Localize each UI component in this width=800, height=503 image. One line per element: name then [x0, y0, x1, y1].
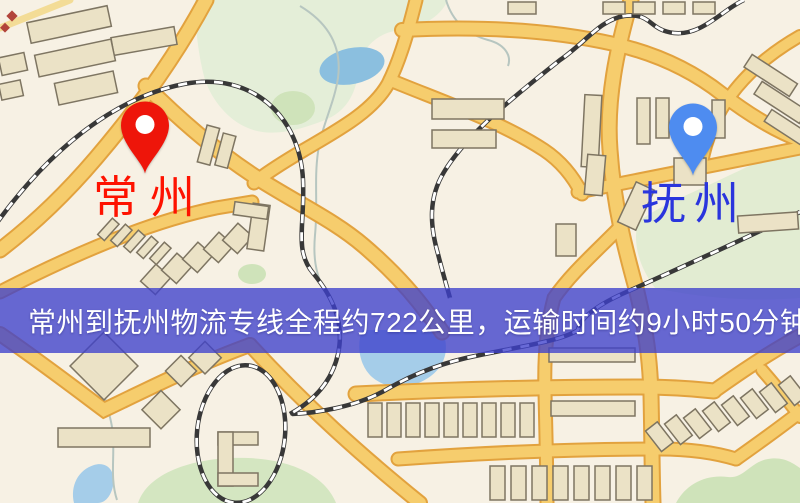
pin-body: [121, 102, 169, 174]
route-info-text: 常州到抚州物流专线全程约722公里，运输时间约9小时50分钟.: [0, 301, 800, 341]
pin-hole: [684, 117, 703, 136]
destination-pin[interactable]: [669, 103, 717, 176]
destination-city-label: 抚州: [641, 182, 747, 227]
pin-body: [669, 104, 717, 176]
origin-city-label: 常州: [93, 176, 207, 221]
pin-hole: [136, 115, 155, 134]
location-pin-icon: [669, 103, 717, 176]
location-pin-icon: [121, 101, 169, 174]
map-container[interactable]: 常州 抚州 常州到抚州物流专线全程约722公里，运输时间约9小时50分钟.: [0, 0, 800, 503]
map-background: [0, 0, 800, 503]
origin-pin[interactable]: [121, 101, 169, 174]
route-info-banner: 常州到抚州物流专线全程约722公里，运输时间约9小时50分钟.: [0, 288, 800, 353]
